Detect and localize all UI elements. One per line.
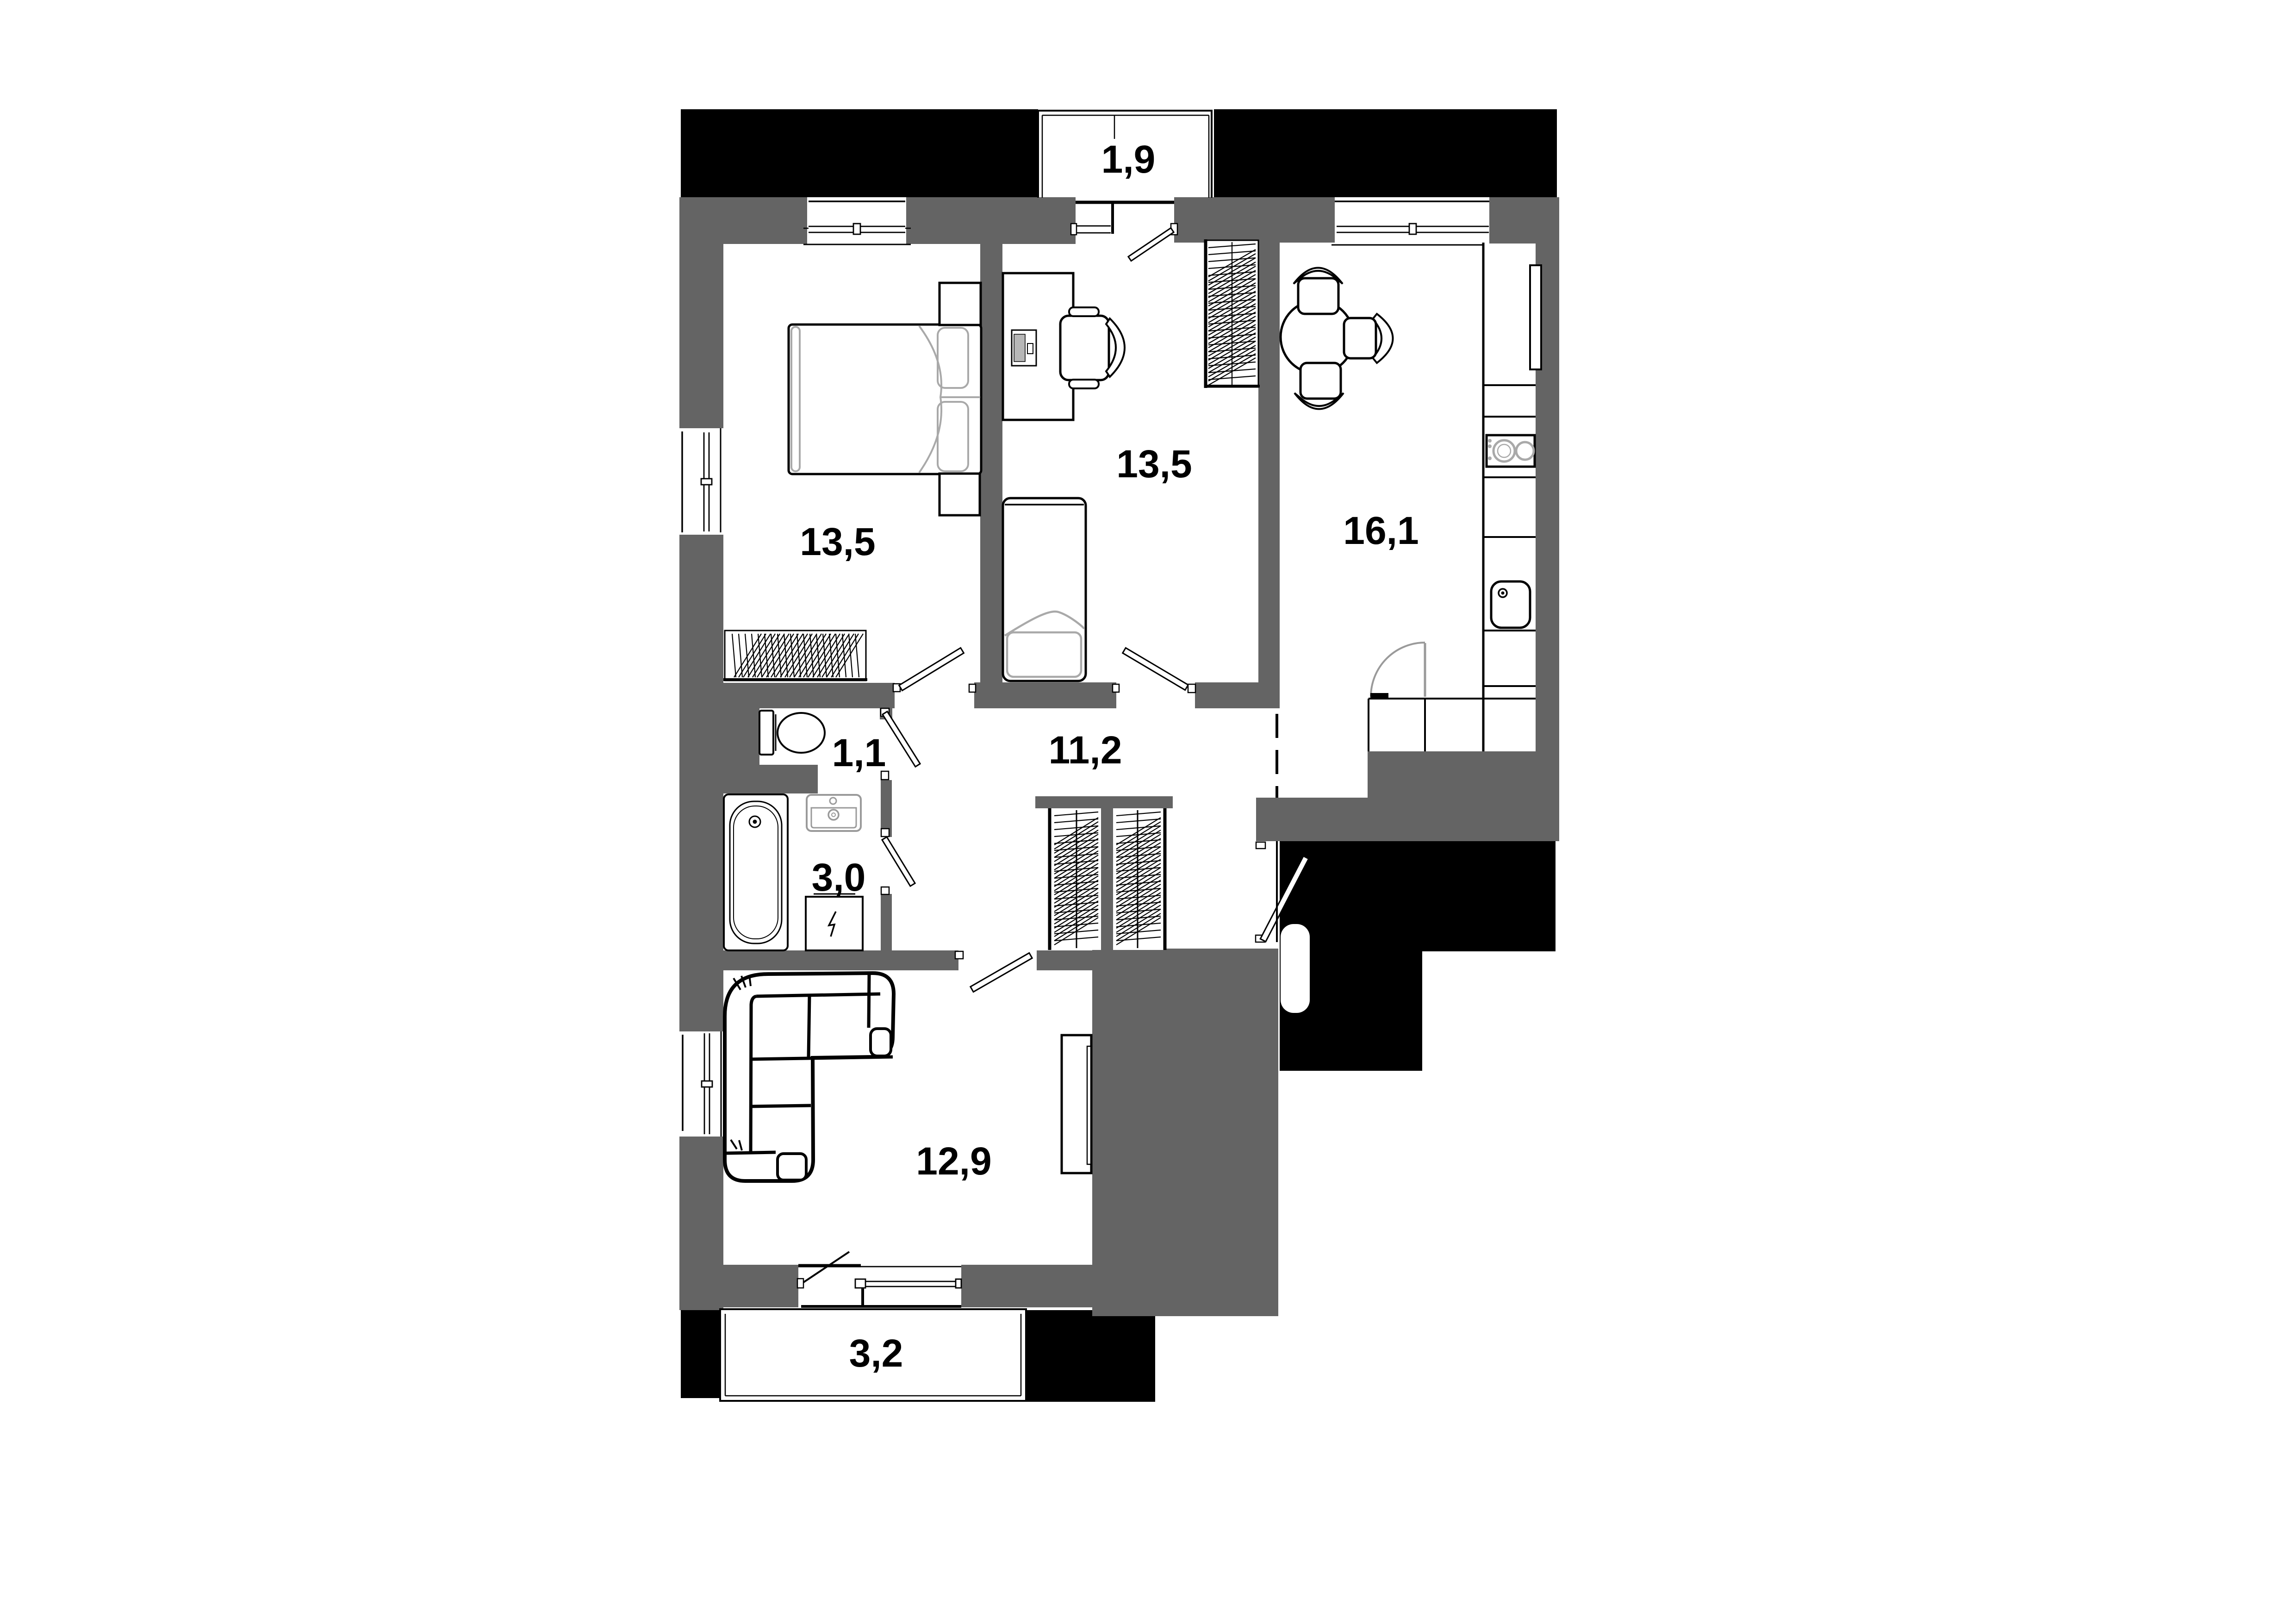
svg-text:1,1: 1,1 [832, 731, 886, 775]
svg-text:3,0: 3,0 [812, 856, 866, 899]
svg-text:13,5: 13,5 [1116, 442, 1192, 486]
svg-text:16,1: 16,1 [1343, 509, 1419, 552]
svg-text:13,5: 13,5 [800, 520, 876, 563]
svg-text:3,2: 3,2 [849, 1331, 903, 1375]
svg-text:1,9: 1,9 [1101, 137, 1156, 181]
svg-text:11,2: 11,2 [1049, 728, 1122, 772]
svg-text:12,9: 12,9 [916, 1139, 992, 1183]
